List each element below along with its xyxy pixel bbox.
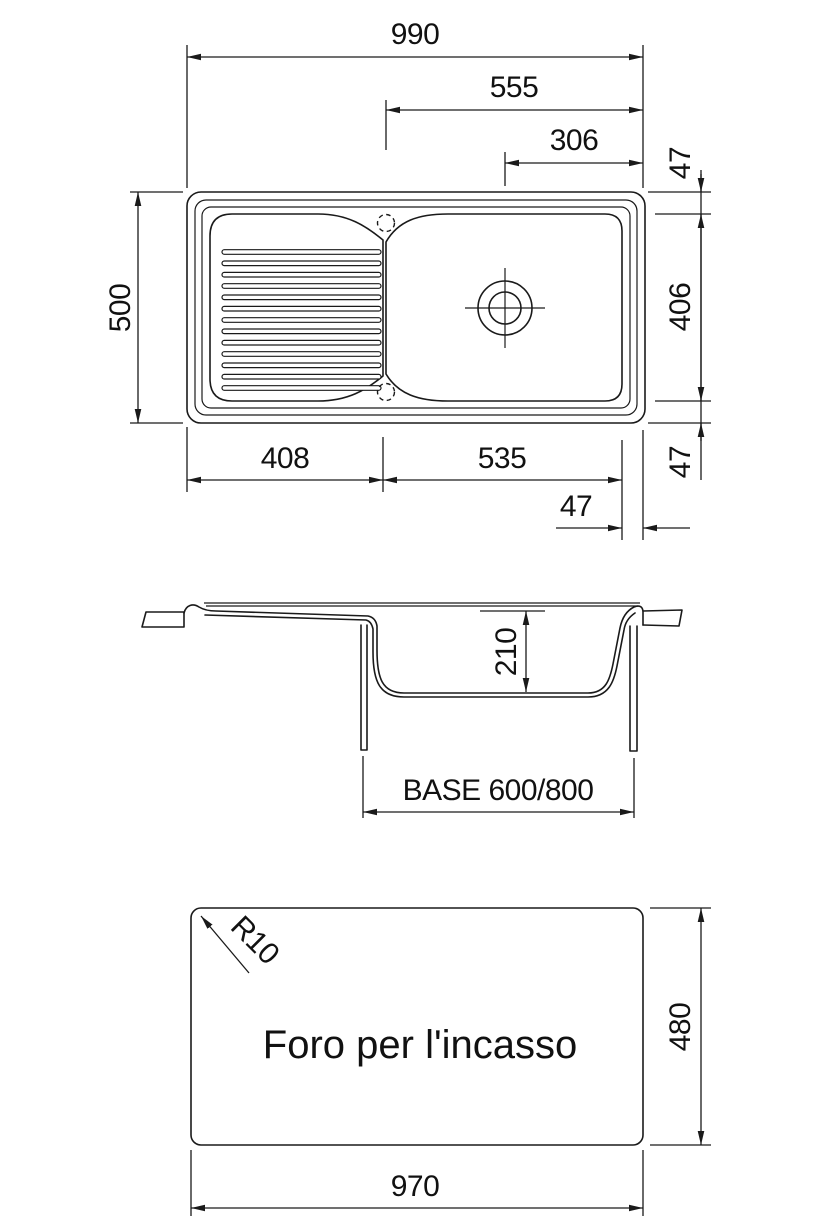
dim-555: 555 [490,71,539,104]
base-cabinet-label: BASE 600/800 [403,774,594,807]
counter-right [643,610,682,626]
dim-overall-width: 990 [391,18,440,51]
cutout-label: Foro per l'incasso [263,1023,577,1067]
counter-left [142,612,184,627]
cutout-view: Foro per l'incasso R10 480 970 [191,908,711,1216]
dim-rim-bottom-47: 47 [664,446,697,478]
drawing-canvas: 990 555 306 500 47 406 47 408 535 [0,0,813,1220]
dim-bowl-width: 535 [478,442,527,475]
tap-hole-top [378,215,395,232]
top-view [187,192,645,423]
sink-technical-drawing: 990 555 306 500 47 406 47 408 535 [0,0,813,1220]
dim-bowl-depth: 210 [490,628,523,677]
drainer-ribs [222,250,381,391]
dim-cutout-height: 480 [664,1003,697,1052]
tap-hole-bottom [378,384,395,401]
dim-cutout-width: 970 [391,1170,440,1203]
cabinet-wall-right [630,626,637,751]
dim-rim-right-47: 47 [560,490,592,523]
dim-306: 306 [550,124,599,157]
section-profile-outer [184,605,643,693]
drain [465,268,545,348]
section-view: 210 BASE 600/800 [142,603,682,818]
section-profile-inner [205,613,635,697]
dim-overall-depth: 500 [104,284,137,333]
dim-basin-height: 406 [664,283,697,332]
dim-corner-radius: R10 [224,910,285,971]
dim-rim-top-47: 47 [664,147,697,179]
dim-drainer-width: 408 [261,442,310,475]
cabinet-wall-left [361,625,367,750]
